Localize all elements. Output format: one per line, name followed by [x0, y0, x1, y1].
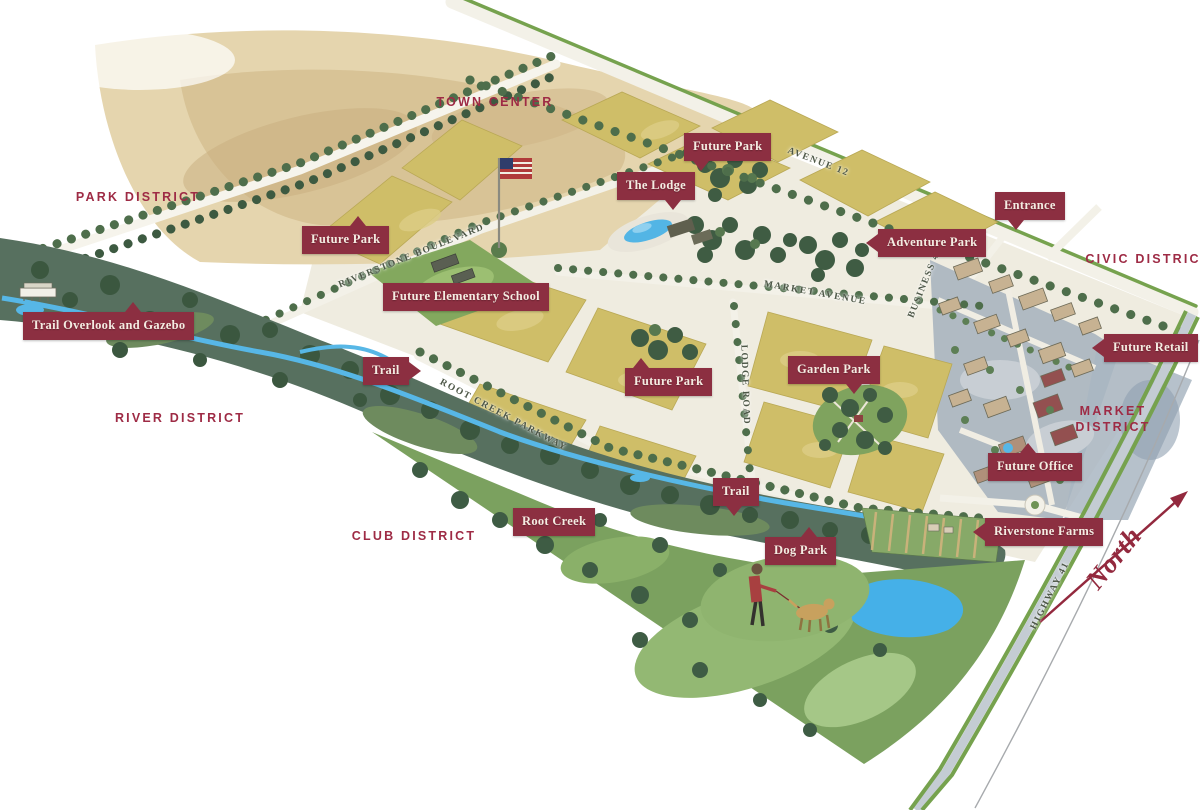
map-label-riverstone-farms: Riverstone Farms — [985, 518, 1103, 546]
office-plaza-fountain — [1003, 443, 1013, 453]
map-label-future-park-central: Future Park — [625, 368, 712, 396]
district-label-town-center: TOWN CENTER — [436, 94, 553, 110]
map-label-future-park-west: Future Park — [302, 226, 389, 254]
map-label-entrance: Entrance — [995, 192, 1065, 220]
district-label-market-district: MARKET DISTRICT — [1058, 403, 1168, 436]
map-illustration — [0, 0, 1200, 810]
map-label-future-retail: Future Retail — [1104, 334, 1198, 362]
district-label-civic-district: CIVIC DISTRICT — [1085, 251, 1200, 267]
map-label-trail-west: Trail — [363, 357, 409, 385]
map-label-trail-overlook-and-gazebo: Trail Overlook and Gazebo — [23, 312, 194, 340]
map-label-the-lodge: The Lodge — [617, 172, 695, 200]
district-label-club-district: CLUB DISTRICT — [352, 528, 476, 544]
map-label-trail-south: Trail — [713, 478, 759, 506]
road-label-lodge-road: LODGE ROAD — [738, 345, 750, 426]
map-label-future-park-north: Future Park — [684, 133, 771, 161]
map-label-future-office: Future Office — [988, 453, 1082, 481]
map-label-garden-park: Garden Park — [788, 356, 880, 384]
map-label-dog-park: Dog Park — [765, 537, 836, 565]
map-label-future-elementary-school: Future Elementary School — [383, 283, 549, 311]
district-label-river-district: RIVER DISTRICT — [115, 410, 245, 426]
masterplan-map: TOWN CENTER PARK DISTRICT CIVIC DISTRICT… — [0, 0, 1200, 810]
district-label-park-district: PARK DISTRICT — [76, 189, 200, 205]
map-label-adventure-park: Adventure Park — [878, 229, 986, 257]
map-label-root-creek: Root Creek — [513, 508, 595, 536]
